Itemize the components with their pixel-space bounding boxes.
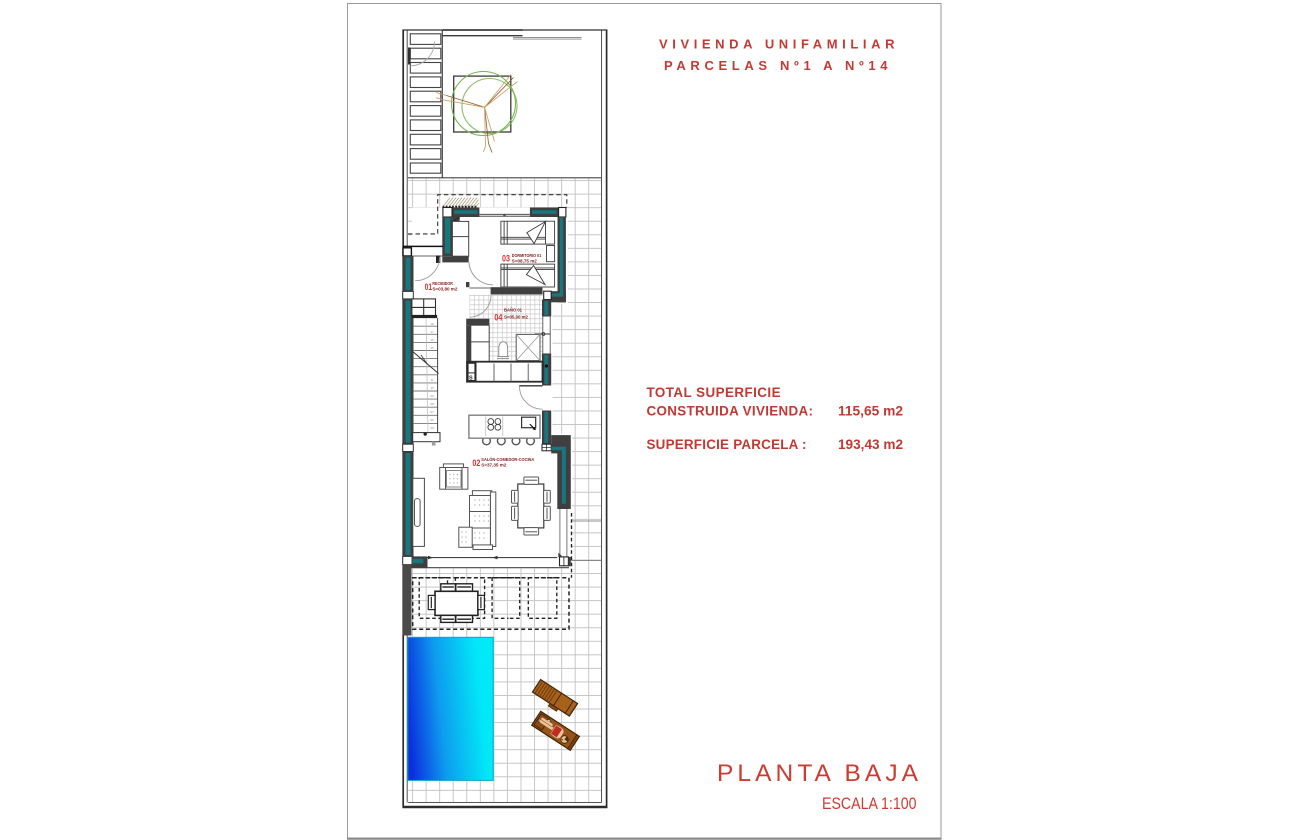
svg-text:09: 09 [431, 394, 435, 398]
svg-text:BAÑO 01: BAÑO 01 [504, 307, 522, 313]
svg-text:ESCALA 1:100: ESCALA 1:100 [822, 795, 917, 813]
svg-text:115,65 m2: 115,65 m2 [838, 403, 903, 418]
svg-text:08: 08 [431, 402, 435, 406]
svg-text:DORMITORIO 01: DORMITORIO 01 [512, 253, 542, 258]
svg-text:RECIBIDOR: RECIBIDOR [432, 281, 453, 286]
svg-text:15: 15 [431, 346, 435, 350]
svg-text:17: 17 [431, 330, 435, 334]
svg-text:TOTAL SUPERFICIE: TOTAL SUPERFICIE [647, 385, 781, 400]
svg-text:16: 16 [431, 338, 435, 342]
svg-text:07: 07 [431, 410, 435, 414]
svg-text:01: 01 [425, 282, 433, 292]
svg-text:10: 10 [431, 386, 435, 390]
svg-text:S: S [469, 376, 473, 382]
svg-text:193,43 m2: 193,43 m2 [838, 437, 903, 452]
svg-text:SALÓN-COMEDOR-COCINA: SALÓN-COMEDOR-COCINA [481, 455, 535, 462]
svg-text:06: 06 [431, 418, 435, 422]
svg-text:S=03,80 m2: S=03,80 m2 [432, 286, 457, 291]
svg-text:SUPERFICIE PARCELA :: SUPERFICIE PARCELA : [647, 437, 807, 452]
svg-text:S=05,00 m2: S=05,00 m2 [504, 315, 528, 320]
svg-text:03: 03 [502, 254, 510, 264]
svg-text:PLANTA BAJA: PLANTA BAJA [717, 760, 919, 787]
svg-text:11: 11 [431, 378, 434, 382]
svg-text:S=08,75 m2: S=08,75 m2 [512, 258, 537, 263]
svg-text:S=37,35 m2: S=37,35 m2 [481, 463, 506, 468]
svg-text:04: 04 [494, 313, 502, 323]
svg-text:02: 02 [472, 458, 480, 468]
svg-text:CONSTRUIDA VIVIENDA:: CONSTRUIDA VIVIENDA: [647, 403, 814, 418]
svg-text:05: 05 [431, 426, 435, 430]
svg-text:18: 18 [431, 322, 435, 326]
